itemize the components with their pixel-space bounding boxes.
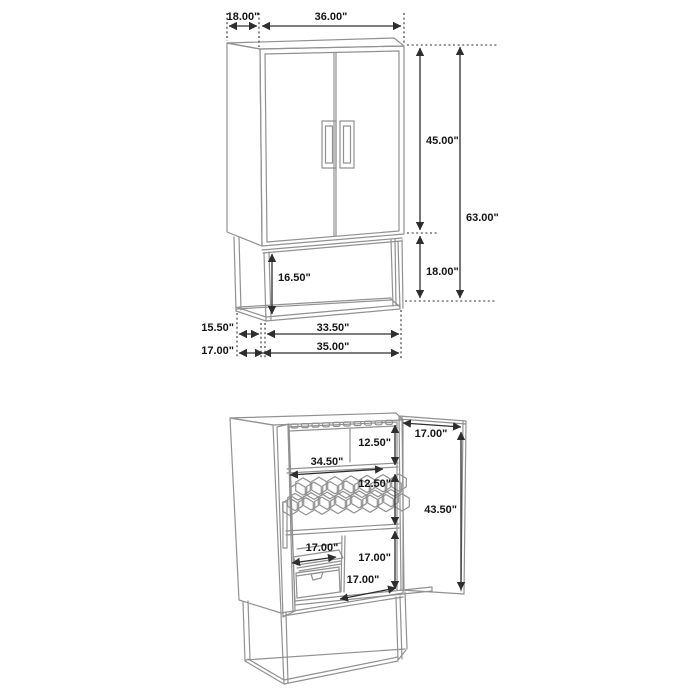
dim-label-cabinet-height: 45.00" (426, 135, 459, 147)
door-handles (322, 121, 354, 168)
lower-shelf (286, 524, 399, 535)
dim-label-tray-width: 17.00" (306, 542, 339, 554)
dim-label-shelf-width: 34.50" (311, 456, 344, 468)
left-door-handle (283, 502, 287, 548)
open-cabinet-left-side (230, 418, 281, 613)
cabinet-left-side (227, 43, 262, 246)
dim-label-top-width: 36.00" (315, 11, 348, 23)
dim-label-top-depth: 18.00" (227, 11, 260, 23)
open-view: 12.50" 34.50" 12.50" 17.00" 43.50" 17.00… (230, 413, 466, 684)
open-cabinet-line-art (230, 413, 466, 684)
dim-label-lower-section-height: 17.00" (358, 552, 391, 564)
dim-label-base-depth: 17.00" (201, 345, 234, 357)
bar-cabinet-dimension-drawing: 18.00" 36.00" 45.00" 63.00" 18.00" 16.50… (0, 0, 700, 700)
metal-base-frame (234, 237, 403, 321)
dimension-diagram-page: 18.00" 36.00" 45.00" 63.00" 18.00" 16.50… (0, 0, 700, 700)
dim-arrow-door-width (403, 423, 461, 427)
dim-label-base-height: 18.00" (426, 266, 459, 278)
dim-label-base-platform-depth: 17.00" (347, 574, 380, 586)
dim-label-door-height: 43.50" (424, 504, 457, 516)
closed-cabinet-line-art (227, 38, 404, 321)
dim-label-total-height: 63.00" (466, 212, 499, 224)
drawer-notch-handle (311, 572, 323, 580)
dim-label-base-width-inner: 33.50" (317, 322, 350, 334)
dim-label-door-width: 17.00" (415, 428, 448, 440)
closed-view: 18.00" 36.00" 45.00" 63.00" 18.00" 16.50… (201, 11, 499, 359)
dim-label-wine-rack-height: 12.50" (358, 478, 391, 490)
drawer (296, 567, 340, 598)
dim-label-stemware-height: 12.50" (358, 437, 391, 449)
dim-label-base-width: 35.00" (317, 341, 350, 353)
dim-label-base-depth-inner: 15.50" (201, 322, 234, 334)
dim-label-base-opening-height: 16.50" (278, 272, 311, 284)
